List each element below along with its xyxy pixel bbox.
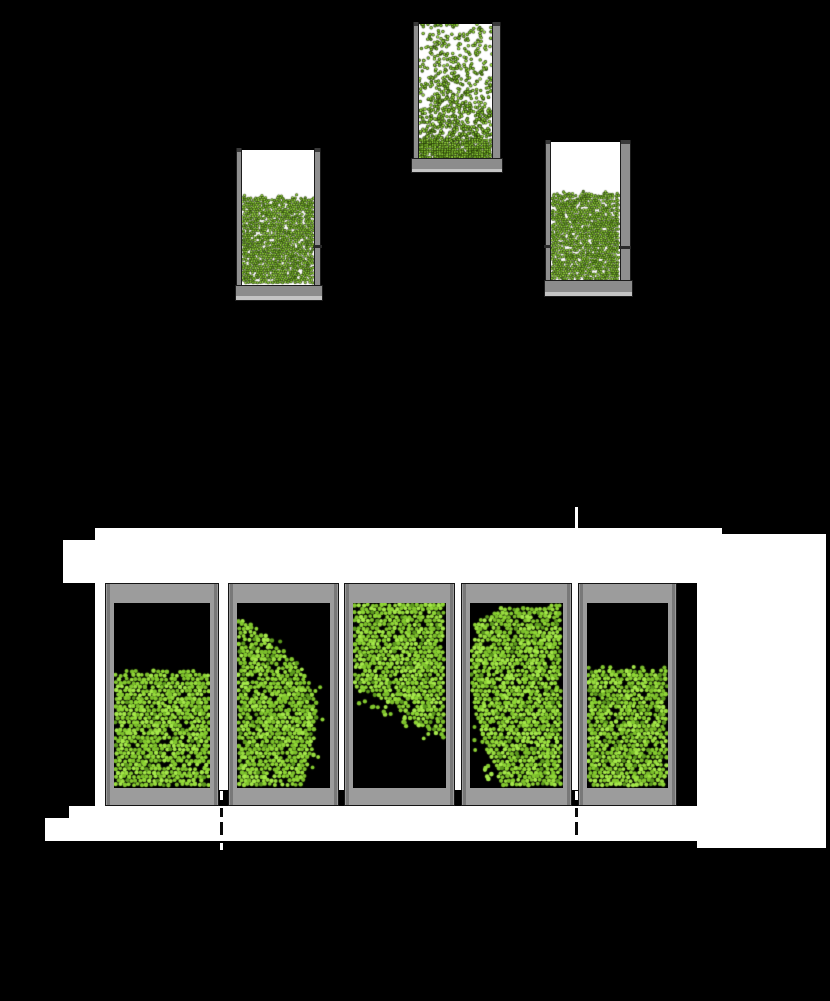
dash-segment-black	[220, 808, 223, 817]
particle-canvas	[242, 150, 314, 285]
bottom-container-2	[228, 583, 339, 806]
wall-cap	[414, 22, 418, 26]
particle-canvas	[470, 603, 563, 788]
highlight-block	[95, 583, 105, 806]
bottom-container-3	[344, 583, 455, 806]
dash-segment-black	[575, 822, 578, 835]
top-left-container	[235, 148, 323, 300]
dash-segment-black	[220, 822, 223, 835]
frame-edge-left	[107, 584, 110, 805]
dash-segment-white	[575, 791, 578, 800]
frame-edge-right	[672, 584, 675, 805]
bottom-container-4	[461, 583, 572, 806]
particle-canvas	[419, 24, 492, 158]
frame-edge-left	[346, 584, 349, 805]
bottom-container-1	[105, 583, 219, 806]
figure-page	[0, 0, 830, 1001]
highlight-block	[722, 534, 826, 583]
frame-edge-left	[580, 584, 583, 805]
top-right-container	[544, 140, 633, 297]
particle-canvas	[237, 603, 330, 788]
frame-edge-right	[214, 584, 217, 805]
frame-edge-right	[334, 584, 337, 805]
frame-edge-left	[463, 584, 466, 805]
highlight-block	[95, 528, 722, 540]
highlight-block	[697, 583, 826, 848]
frame-edge-right	[567, 584, 570, 805]
frame-edge-left	[230, 584, 233, 805]
fill-level-tick	[619, 246, 631, 249]
container-wall-right	[314, 148, 321, 285]
wall-cap	[546, 140, 550, 144]
particle-canvas	[114, 603, 210, 788]
frame-edge-right	[450, 584, 453, 805]
wall-cap	[493, 22, 500, 26]
dash-segment-white	[220, 791, 223, 800]
container-wall-right	[620, 140, 631, 280]
highlight-block	[575, 507, 578, 528]
top-center-container	[411, 22, 503, 173]
wall-cap	[237, 148, 241, 152]
highlight-block	[219, 583, 228, 790]
particle-canvas	[551, 142, 620, 280]
container-wall-right	[492, 22, 501, 158]
particle-canvas	[353, 603, 446, 788]
wall-cap	[315, 148, 320, 152]
container-base-slab	[411, 158, 503, 173]
wall-cap	[621, 140, 630, 144]
slab-light-edge	[545, 292, 632, 296]
slab-light-edge	[412, 169, 502, 172]
highlight-block	[63, 540, 722, 583]
container-base-slab	[235, 285, 323, 301]
container-base-slab	[544, 280, 633, 297]
bottom-container-5	[578, 583, 677, 806]
highlight-block	[69, 806, 697, 841]
highlight-block	[45, 818, 69, 841]
dash-segment-black	[575, 808, 578, 817]
particle-canvas	[587, 603, 668, 788]
dash-segment-white	[220, 843, 223, 850]
slab-light-edge	[236, 296, 322, 300]
